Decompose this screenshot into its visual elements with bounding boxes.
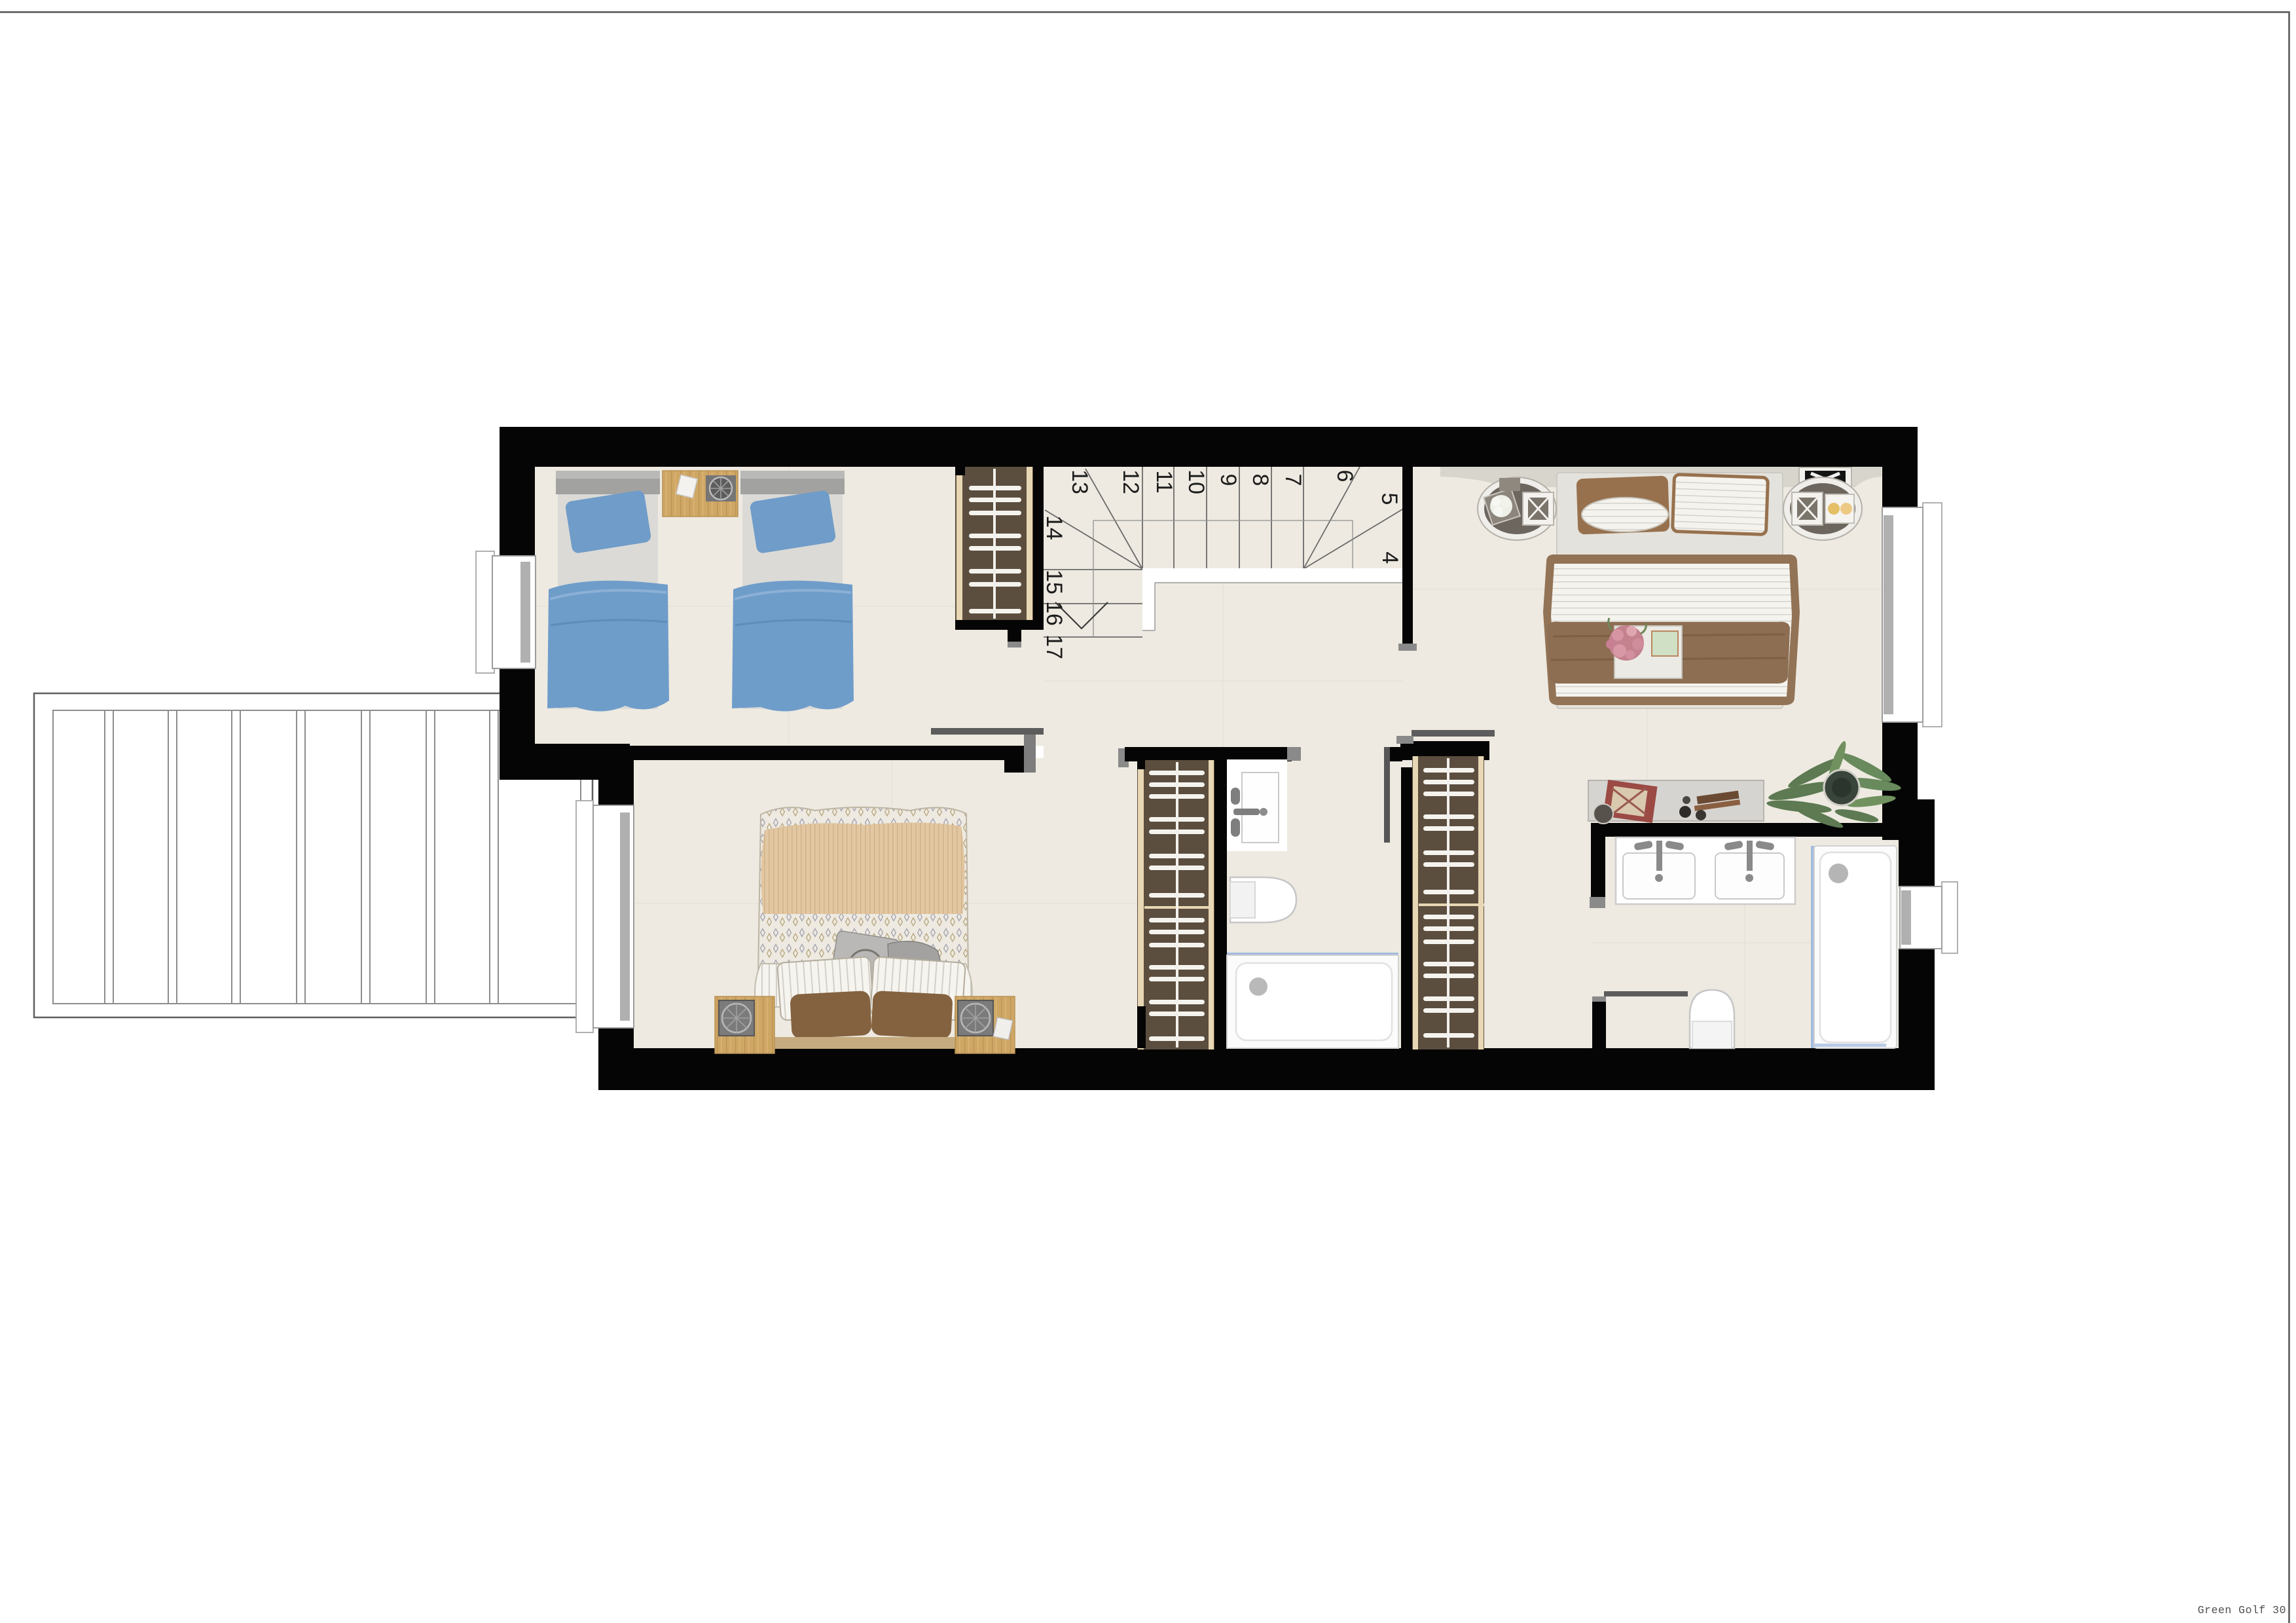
svg-text:11: 11: [1152, 470, 1176, 493]
svg-text:4: 4: [1377, 552, 1402, 564]
svg-text:6: 6: [1332, 470, 1357, 483]
svg-text:8: 8: [1248, 474, 1273, 486]
svg-text:14: 14: [1042, 515, 1066, 540]
svg-text:5: 5: [1377, 493, 1402, 505]
svg-text:15: 15: [1042, 570, 1066, 594]
svg-text:10: 10: [1184, 469, 1209, 494]
svg-text:9: 9: [1216, 474, 1241, 486]
svg-text:Green Golf 30: Green Golf 30: [2198, 1604, 2286, 1616]
svg-text:7: 7: [1281, 474, 1305, 486]
svg-text:12: 12: [1118, 469, 1143, 494]
svg-text:13: 13: [1067, 469, 1092, 494]
svg-text:17: 17: [1042, 634, 1066, 659]
svg-text:16: 16: [1042, 601, 1066, 626]
